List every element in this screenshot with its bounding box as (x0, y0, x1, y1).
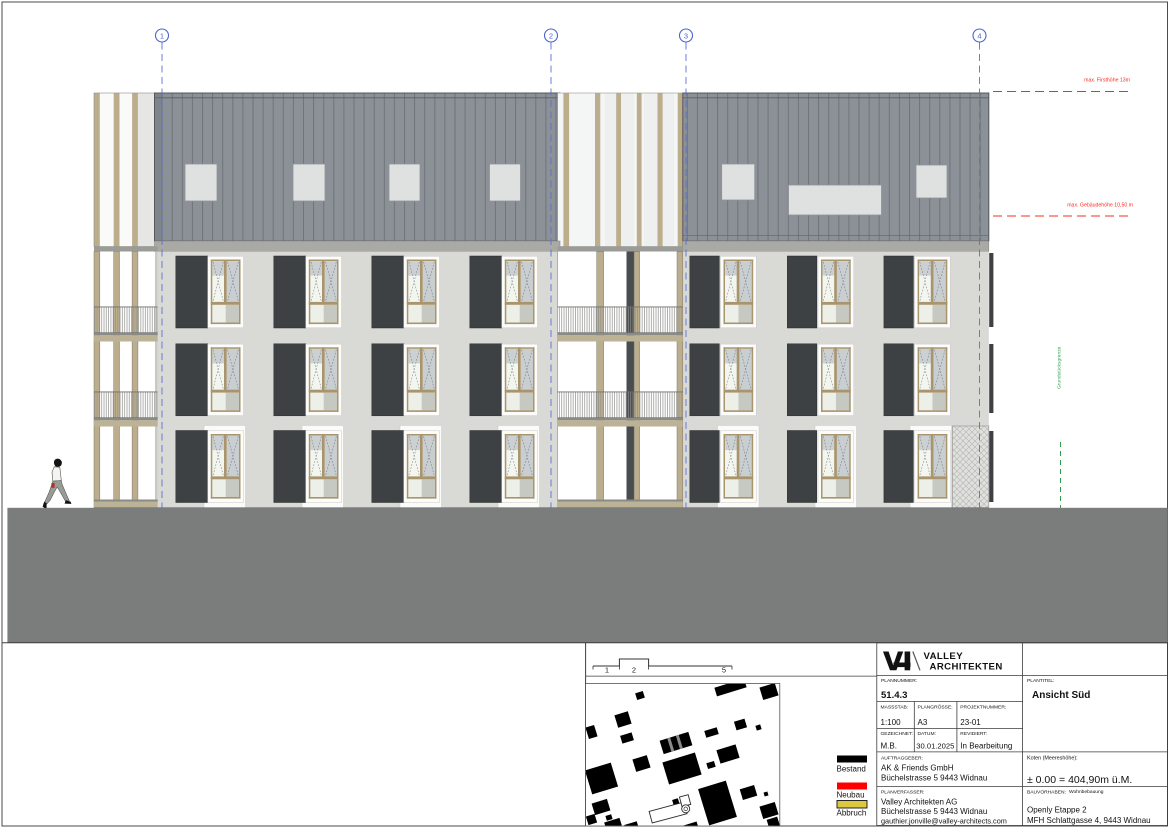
svg-text:AUFTRAGGEBER:: AUFTRAGGEBER: (881, 755, 923, 761)
svg-text:2: 2 (549, 31, 553, 40)
svg-text:MFH Schlattgasse 4, 9443 Widna: MFH Schlattgasse 4, 9443 Widnau (1027, 816, 1151, 825)
svg-text:ARCHITEKTEN: ARCHITEKTEN (930, 661, 1003, 672)
svg-text:PROJEKTNUMMER:: PROJEKTNUMMER: (960, 704, 1006, 710)
svg-text:gauthier.jonville@valley-archi: gauthier.jonville@valley-architects.com (881, 816, 1007, 825)
svg-text:30.01.2025: 30.01.2025 (916, 742, 954, 751)
svg-text:1: 1 (160, 31, 164, 40)
svg-text:1: 1 (605, 665, 609, 674)
svg-text:Ansicht Süd: Ansicht Süd (1032, 690, 1090, 701)
svg-text:Grundstücksgrenze: Grundstücksgrenze (1057, 346, 1063, 389)
svg-text:± 0.00 = 404,90m ü.M.: ± 0.00 = 404,90m ü.M. (1027, 774, 1132, 786)
svg-text:max. Firsthöhe 13m: max. Firsthöhe 13m (1084, 78, 1130, 84)
svg-text:Wohnbebauung: Wohnbebauung (1069, 789, 1104, 795)
svg-text:Neubau: Neubau (837, 790, 865, 799)
svg-text:PLANVERFASSER:: PLANVERFASSER: (881, 789, 925, 795)
svg-text:GEZEICHNET:: GEZEICHNET: (881, 731, 913, 737)
svg-text:Büchelstrasse 5 9443 Widnau: Büchelstrasse 5 9443 Widnau (881, 807, 987, 816)
svg-text:VALLEY: VALLEY (924, 651, 964, 662)
svg-text:In Bearbeitung: In Bearbeitung (960, 742, 1012, 751)
svg-text:M.B.: M.B. (881, 742, 897, 751)
svg-text:PLANTITEL:: PLANTITEL: (1027, 678, 1054, 684)
svg-text:PLANGRÖSSE:: PLANGRÖSSE: (918, 703, 953, 710)
svg-text:MASSSTAB:: MASSSTAB: (881, 704, 909, 710)
svg-text:A3: A3 (918, 718, 928, 727)
svg-text:51.4.3: 51.4.3 (881, 690, 907, 701)
svg-text:PLANNUMMER:: PLANNUMMER: (881, 678, 917, 684)
svg-text:2: 2 (632, 665, 636, 674)
svg-text:Koten (Meereshöhe):: Koten (Meereshöhe): (1027, 755, 1078, 761)
svg-text:Abbruch: Abbruch (837, 809, 867, 818)
svg-text:max. Gebäudehöhe 10,50 m: max. Gebäudehöhe 10,50 m (1067, 203, 1133, 209)
svg-text:BAUVORHABEN:: BAUVORHABEN: (1027, 789, 1066, 795)
svg-text:Valley Architekten AG: Valley Architekten AG (881, 797, 957, 806)
svg-text:Büchelstrasse 5 9443 Widnau: Büchelstrasse 5 9443 Widnau (881, 773, 987, 782)
svg-text:Bestand: Bestand (837, 765, 866, 774)
svg-text:23-01: 23-01 (960, 718, 981, 727)
svg-text:1:100: 1:100 (881, 718, 902, 727)
svg-text:Openly Etappe 2: Openly Etappe 2 (1027, 805, 1087, 814)
svg-text:4: 4 (977, 31, 981, 40)
svg-text:3: 3 (684, 31, 688, 40)
svg-text:AK & Friends GmbH: AK & Friends GmbH (881, 763, 954, 772)
svg-text:REVIDIERT:: REVIDIERT: (960, 731, 987, 737)
svg-text:5: 5 (722, 665, 726, 674)
svg-text:DATUM:: DATUM: (918, 731, 936, 737)
